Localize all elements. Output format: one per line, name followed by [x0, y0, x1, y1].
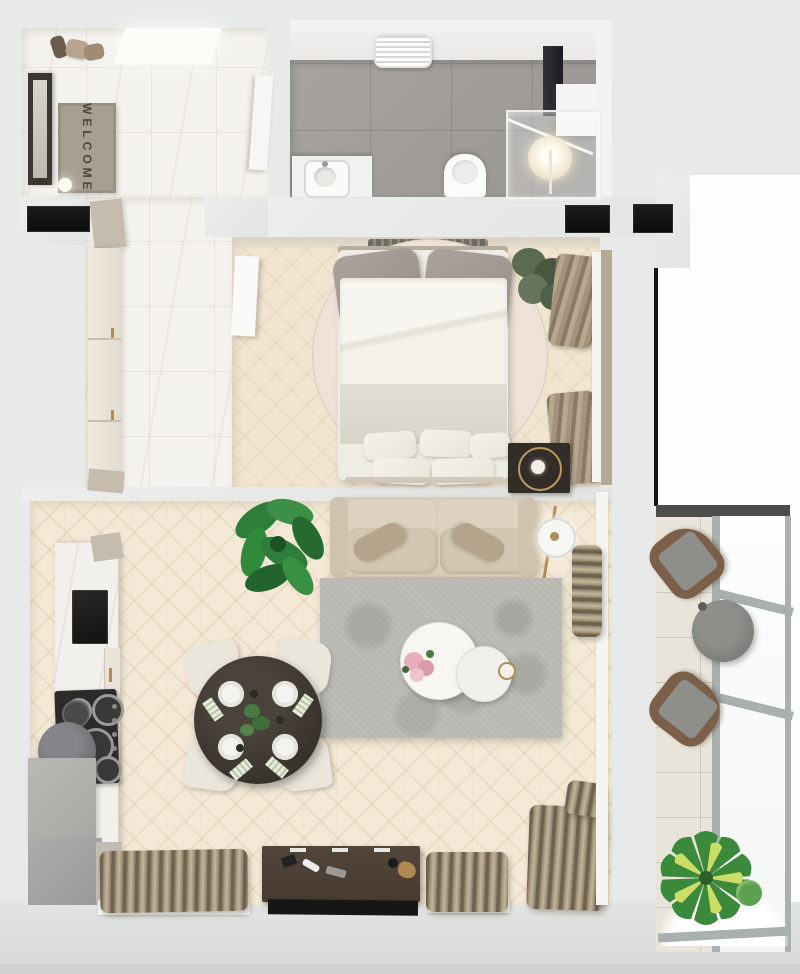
burner-5	[94, 756, 122, 784]
bed-frame-foot	[345, 477, 505, 483]
wall-window-top-2	[633, 204, 673, 233]
curtain-right-upper	[572, 545, 602, 637]
centerpiece-greenery-3	[240, 724, 254, 736]
sink-bowl	[314, 167, 336, 187]
sofa-armrest-right	[518, 497, 536, 577]
console-handle-2	[332, 848, 348, 852]
bed-duvet	[340, 278, 507, 390]
wall-lamp	[58, 178, 72, 192]
flower-bouquet-leaf-2	[402, 666, 409, 673]
entrance-door-leaf	[33, 80, 47, 178]
console-handle-1	[290, 848, 306, 852]
floor-lamp-bulb	[550, 532, 559, 541]
table-glass-3	[236, 744, 244, 752]
ceiling-light-panel	[114, 28, 222, 64]
cooktop-knob-4	[112, 746, 117, 751]
tv-screen	[268, 899, 418, 916]
apartment-floor-plan: WELCOME	[0, 0, 800, 974]
wall-window-left	[27, 206, 90, 232]
centerpiece-greenery-2	[252, 716, 270, 730]
curtain-bottom-left	[99, 849, 248, 914]
cooktop-knob-3	[112, 732, 117, 737]
hall-cabinet-bottom	[87, 468, 125, 493]
balcony-table-handle	[698, 602, 707, 611]
dinner-plate-ne	[272, 681, 298, 707]
curtain-bottom-mid	[426, 852, 508, 912]
cooktop-knob-1	[112, 704, 117, 709]
toilet-seat	[452, 160, 478, 184]
bathroom-upper-band	[290, 20, 612, 62]
cooktop-knob-2	[112, 718, 117, 723]
dinner-plate-se	[272, 734, 298, 760]
flower-bouquet-pink-3	[410, 668, 424, 682]
flower-bouquet-leaf-1	[426, 650, 434, 658]
wall-window-top-1	[565, 205, 610, 233]
table-glass-2	[276, 716, 284, 724]
hall-wardrobe	[88, 248, 121, 488]
hall-wardrobe-handle-2	[111, 410, 114, 420]
dinner-plate-nw	[218, 681, 244, 707]
wall-entry-bottom-right	[205, 197, 268, 237]
burner-2	[92, 694, 124, 726]
kitchen-lower-cabinet-2	[28, 838, 102, 905]
exterior-area-far-right	[790, 506, 800, 952]
sink-faucet	[322, 161, 328, 167]
balcony-variegated-plant	[656, 828, 756, 928]
monstera-plant	[228, 490, 332, 598]
kitchen-sink-panel	[72, 590, 108, 644]
shower-arm	[549, 150, 552, 194]
gold-dish	[498, 662, 516, 680]
wall-bath-bedroom	[268, 197, 690, 237]
hall-wardrobe-handle-1	[111, 328, 114, 338]
nightstand-clock-face	[531, 460, 545, 474]
balcony-frame-outer	[785, 516, 791, 952]
bed-foot-pillow-3	[469, 432, 510, 459]
table-glass-1	[250, 690, 258, 698]
hall-wardrobe-seam-1	[88, 338, 121, 340]
towel-dryer	[374, 34, 432, 68]
console-handle-3	[374, 848, 390, 852]
balcony-plant-side-leaf	[736, 880, 762, 906]
welcome-mat-text: WELCOME	[80, 103, 94, 194]
kitchen-lower-cabinet-1	[28, 758, 96, 842]
exterior-wall-edge-line	[654, 268, 658, 506]
sofa-armrest-left	[330, 497, 348, 577]
kitchen-counter-cap	[90, 532, 123, 562]
console-decor-knob	[388, 858, 398, 868]
hall-wardrobe-seam-2	[88, 420, 121, 422]
bedroom-side-panel	[601, 250, 612, 485]
bedroom-open-door	[231, 255, 259, 336]
bottom-wall-edge	[0, 964, 800, 974]
bed-foot-pillow-2	[420, 429, 473, 458]
hall-cabinet-top	[90, 198, 127, 249]
bed-foot-pillow-1	[363, 430, 417, 461]
kitchen-cabinet-handle-1	[109, 668, 112, 682]
